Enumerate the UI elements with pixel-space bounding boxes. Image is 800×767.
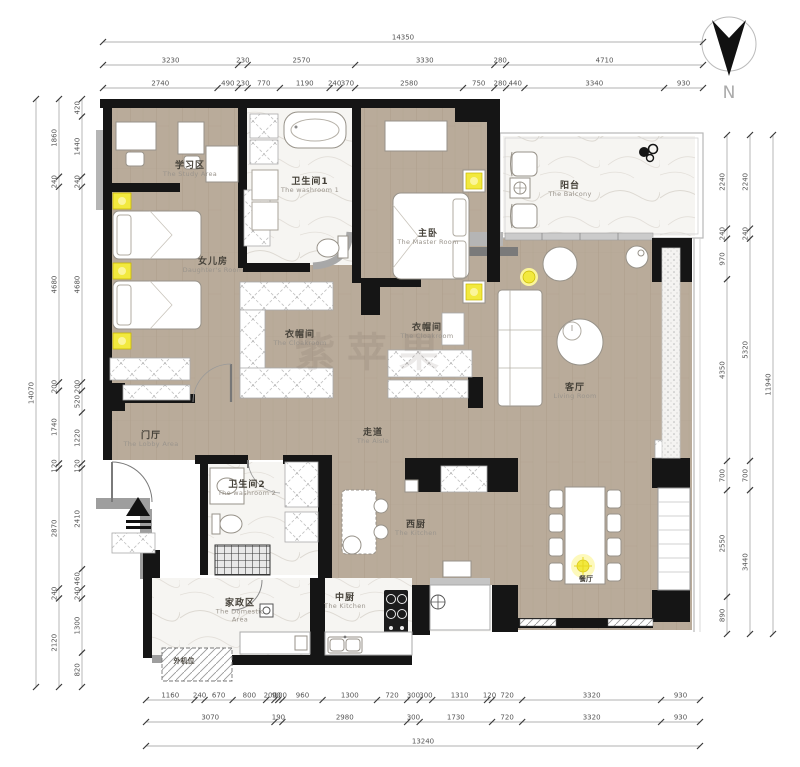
dim-value: 970 <box>719 252 727 265</box>
dim-value: 14350 <box>392 34 414 42</box>
dim-chain-top-row3: 2740490230770119024037025807502804403340… <box>100 80 706 92</box>
dim-value: 2240 <box>742 173 750 191</box>
dim-value: 720 <box>500 714 513 722</box>
dim-value: 960 <box>296 692 309 700</box>
dim-value: 420 <box>74 101 82 114</box>
radiator-right <box>608 619 653 626</box>
north-arrow: N <box>702 17 756 103</box>
dim-value: 2240 <box>719 173 727 191</box>
dim-value: 240 <box>742 227 750 240</box>
left-window <box>96 130 104 210</box>
kitchen-sink <box>325 632 412 655</box>
dim-value: 720 <box>385 692 398 700</box>
floor-plan-drawing: N 14350323023025703330280471027404902307… <box>0 0 800 767</box>
balcony-sliding-door <box>505 233 653 240</box>
floor-plan-stage: N 14350323023025703330280471027404902307… <box>0 0 800 767</box>
dim-value: 930 <box>674 692 687 700</box>
dim-value: 300 <box>407 714 420 722</box>
dim-value: 1310 <box>451 692 469 700</box>
dim-value: 280 <box>494 80 507 88</box>
dim-value: 240 <box>193 692 206 700</box>
dim-value: 3330 <box>416 57 434 65</box>
washroom2-fixtures <box>210 468 244 534</box>
dim-value: 2550 <box>719 535 727 553</box>
dim-value: 240 <box>328 80 341 88</box>
dim-value: 520 <box>74 395 82 408</box>
dim-chain-top-row_total: 14350 <box>100 34 706 46</box>
stove <box>384 590 408 636</box>
dim-value: 1740 <box>51 418 59 436</box>
dim-value: 930 <box>677 80 690 88</box>
dim-value: 5320 <box>742 341 750 359</box>
dim-value: 1220 <box>74 429 82 447</box>
dim-value: 230 <box>236 57 249 65</box>
dim-value: 930 <box>674 714 687 722</box>
dim-chain-left-mid: 18602404680200174012028702402120 <box>51 96 63 690</box>
dim-value: 770 <box>257 80 270 88</box>
dim-value: 700 <box>719 469 727 482</box>
dim-chain-left-row_total: 14070 <box>28 96 40 690</box>
ac-unit-zone <box>162 648 232 681</box>
dim-value: 200 <box>51 380 59 393</box>
dim-value: 700 <box>742 469 750 482</box>
shower-floor <box>215 545 270 575</box>
dim-value: 4680 <box>74 276 82 294</box>
dim-value: 3070 <box>201 714 219 722</box>
north-label: N <box>723 83 736 103</box>
dim-value: 4350 <box>719 361 727 379</box>
dim-value: 190 <box>272 714 285 722</box>
dim-value: 1160 <box>161 692 179 700</box>
dim-value: 100 <box>274 692 287 700</box>
dim-value: 890 <box>719 609 727 622</box>
dim-value: 2120 <box>51 634 59 652</box>
dim-chain-bottom-row1: 1160240670800200901009601300720300300131… <box>143 692 703 704</box>
kitchen-sliding-door <box>430 578 490 585</box>
dim-value: 300 <box>419 692 432 700</box>
dim-value: 230 <box>236 80 249 88</box>
dim-value: 240 <box>51 175 59 188</box>
dim-value: 240 <box>74 587 82 600</box>
dim-value: 1730 <box>447 714 465 722</box>
dim-value: 2870 <box>51 519 59 537</box>
dim-value: 240 <box>51 587 59 600</box>
dim-value: 1300 <box>341 692 359 700</box>
dim-value: 120 <box>51 459 59 472</box>
dim-chain-bottom-row2: 3070190298030017307203320930 <box>143 714 703 726</box>
dim-value: 120 <box>74 459 82 472</box>
dim-chain-top-row2: 3230230257033302804710 <box>100 57 706 69</box>
dim-value: 820 <box>74 663 82 676</box>
radiator-left <box>520 619 556 626</box>
dim-value: 280 <box>494 57 507 65</box>
dim-value: 370 <box>341 80 354 88</box>
dim-value: 800 <box>243 692 256 700</box>
dining-cabinet <box>658 488 690 590</box>
dim-value: 2580 <box>400 80 418 88</box>
dim-value: 300 <box>407 692 420 700</box>
dim-value: 11940 <box>765 373 773 395</box>
dim-value: 490 <box>221 80 234 88</box>
dim-value: 14070 <box>28 382 36 404</box>
dim-chain-right-inner: 224024097043507002550890 <box>719 132 731 637</box>
dim-value: 3340 <box>585 80 603 88</box>
dim-value: 750 <box>472 80 485 88</box>
dim-value: 1300 <box>74 617 82 635</box>
dim-value: 460 <box>74 572 82 585</box>
dim-value: 2570 <box>292 57 310 65</box>
dim-value: 200 <box>74 380 82 393</box>
dim-value: 3230 <box>162 57 180 65</box>
dim-value: 670 <box>212 692 225 700</box>
dim-value: 720 <box>500 692 513 700</box>
dim-value: 240 <box>719 227 727 240</box>
dim-value: 1190 <box>296 80 314 88</box>
dim-value: 2410 <box>74 510 82 528</box>
counter-appliance <box>430 585 490 630</box>
dim-chain-right-row_total: 11940 <box>765 132 777 637</box>
dim-value: 4680 <box>51 276 59 294</box>
curtain-strip <box>662 248 680 458</box>
dim-value: 3320 <box>583 714 601 722</box>
dim-chain-right-mid: 224024053207003440 <box>742 132 754 637</box>
dim-value: 1440 <box>74 138 82 156</box>
dim-chain-bottom-row_total: 13240 <box>143 738 703 750</box>
dim-value: 2980 <box>336 714 354 722</box>
dim-value: 1860 <box>51 129 59 147</box>
dim-value: 4710 <box>596 57 614 65</box>
dim-value: 440 <box>509 80 522 88</box>
dim-chain-left-inner: 4201440240468020052012201202410460240130… <box>74 96 86 690</box>
dim-value: 120 <box>483 692 496 700</box>
entry-door <box>112 462 152 502</box>
dim-value: 2740 <box>151 80 169 88</box>
dim-value: 240 <box>74 175 82 188</box>
dim-value: 3440 <box>742 553 750 571</box>
dim-value: 3320 <box>583 692 601 700</box>
dim-value: 13240 <box>412 738 434 746</box>
